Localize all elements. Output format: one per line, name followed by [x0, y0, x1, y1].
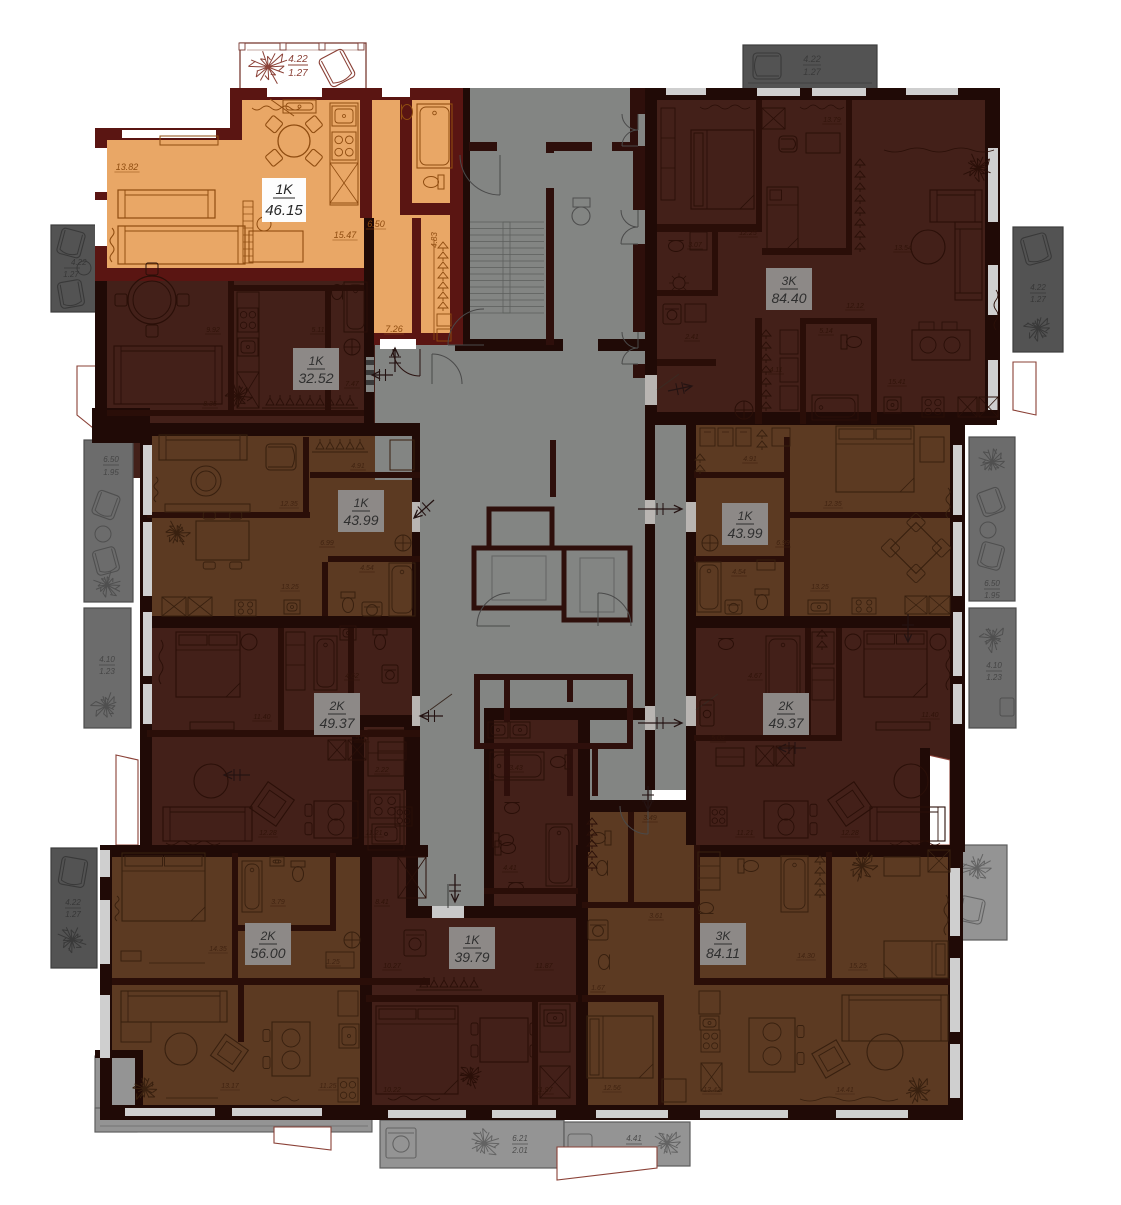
- svg-text:2K: 2K: [778, 699, 795, 713]
- svg-text:3.61: 3.61: [649, 913, 663, 920]
- svg-text:13.42: 13.42: [703, 1087, 721, 1094]
- svg-text:7.26: 7.26: [385, 324, 403, 334]
- svg-text:13.25: 13.25: [281, 584, 299, 591]
- svg-text:3.07: 3.07: [688, 242, 703, 249]
- svg-text:13.17: 13.17: [221, 1083, 240, 1090]
- svg-text:12.56: 12.56: [603, 1085, 621, 1092]
- svg-text:4.22: 4.22: [288, 54, 308, 65]
- svg-text:1K: 1K: [354, 496, 370, 510]
- svg-text:9.92: 9.92: [206, 327, 220, 334]
- svg-text:13.82: 13.82: [116, 162, 139, 172]
- svg-text:49.37: 49.37: [768, 715, 804, 731]
- svg-text:12.35: 12.35: [280, 501, 298, 508]
- svg-text:13.54: 13.54: [894, 245, 912, 252]
- svg-text:12.25: 12.25: [739, 230, 757, 237]
- svg-text:4.22: 4.22: [803, 54, 821, 64]
- svg-text:39.79: 39.79: [454, 949, 489, 965]
- svg-text:10.22: 10.22: [383, 1087, 401, 1094]
- svg-text:8.35: 8.35: [203, 401, 217, 408]
- svg-text:4.22: 4.22: [65, 898, 81, 907]
- svg-text:4.22: 4.22: [71, 258, 87, 267]
- svg-text:1.95: 1.95: [103, 468, 119, 477]
- svg-text:1.27: 1.27: [65, 910, 81, 919]
- svg-text:5.03: 5.03: [355, 735, 369, 742]
- svg-text:11.21: 11.21: [737, 830, 754, 837]
- svg-text:1.27: 1.27: [288, 68, 308, 79]
- svg-text:12.35: 12.35: [824, 501, 842, 508]
- svg-text:4.22: 4.22: [1030, 283, 1046, 292]
- svg-text:3.49: 3.49: [643, 815, 657, 822]
- svg-text:3.43: 3.43: [509, 765, 523, 772]
- svg-text:7.47: 7.47: [345, 381, 360, 388]
- svg-text:4.54: 4.54: [732, 569, 746, 576]
- svg-text:14.30: 14.30: [797, 953, 815, 960]
- svg-text:11.40: 11.40: [254, 714, 271, 721]
- svg-text:4.62: 4.62: [345, 673, 359, 680]
- svg-text:12.28: 12.28: [841, 830, 859, 837]
- svg-text:13.25: 13.25: [811, 584, 829, 591]
- svg-text:2.01: 2.01: [511, 1146, 528, 1155]
- svg-text:6.50: 6.50: [984, 579, 1000, 588]
- svg-text:56.00: 56.00: [250, 945, 285, 961]
- svg-text:43.99: 43.99: [343, 512, 378, 528]
- svg-text:1K: 1K: [738, 509, 754, 523]
- svg-text:43.99: 43.99: [727, 525, 762, 541]
- svg-text:12.28: 12.28: [259, 830, 277, 837]
- svg-text:4.91: 4.91: [743, 456, 757, 463]
- svg-text:3K: 3K: [782, 274, 798, 288]
- svg-text:1.27: 1.27: [63, 270, 79, 279]
- svg-text:2.41: 2.41: [684, 334, 699, 341]
- svg-text:4.41: 4.41: [503, 865, 517, 872]
- svg-text:84.11: 84.11: [706, 945, 740, 961]
- svg-text:5.11: 5.11: [311, 327, 324, 334]
- svg-text:14.41: 14.41: [836, 1087, 854, 1094]
- svg-text:6.50: 6.50: [103, 455, 119, 464]
- svg-text:15.25: 15.25: [849, 963, 867, 970]
- svg-text:11.25: 11.25: [320, 1083, 337, 1090]
- svg-text:1.25: 1.25: [326, 959, 340, 966]
- svg-text:4.67: 4.67: [748, 673, 763, 680]
- svg-text:1K: 1K: [309, 354, 325, 368]
- svg-text:1.27: 1.27: [1030, 295, 1046, 304]
- svg-text:6.99: 6.99: [776, 540, 790, 547]
- svg-text:2K: 2K: [260, 929, 277, 943]
- svg-text:1.95: 1.95: [984, 591, 1000, 600]
- svg-text:4.83: 4.83: [430, 232, 439, 248]
- svg-text:3.79: 3.79: [271, 899, 285, 906]
- svg-text:2.22: 2.22: [374, 767, 389, 774]
- svg-text:1.23: 1.23: [99, 667, 115, 676]
- svg-text:10.27: 10.27: [383, 963, 402, 970]
- svg-text:4.10: 4.10: [99, 655, 115, 664]
- svg-text:4.10: 4.10: [986, 661, 1002, 670]
- svg-text:8.41: 8.41: [375, 899, 389, 906]
- svg-text:5.14: 5.14: [819, 328, 833, 335]
- svg-text:11.40: 11.40: [922, 712, 939, 719]
- svg-text:1.67: 1.67: [591, 985, 606, 992]
- svg-text:1K: 1K: [465, 933, 481, 947]
- svg-text:5.03: 5.03: [711, 735, 725, 742]
- svg-text:4.11: 4.11: [769, 367, 782, 374]
- svg-text:12.12: 12.12: [846, 303, 864, 310]
- svg-text:15.47: 15.47: [334, 230, 358, 240]
- svg-text:3K: 3K: [716, 929, 732, 943]
- svg-text:11.87: 11.87: [536, 963, 554, 970]
- svg-text:1.27: 1.27: [803, 67, 822, 77]
- svg-text:4.54: 4.54: [360, 565, 374, 572]
- svg-text:6.99: 6.99: [320, 540, 334, 547]
- svg-text:11.97: 11.97: [536, 1087, 554, 1094]
- svg-text:6.21: 6.21: [512, 1134, 528, 1143]
- svg-text:6.50: 6.50: [367, 219, 385, 229]
- svg-text:46.15: 46.15: [265, 202, 303, 219]
- svg-text:14.35: 14.35: [209, 946, 227, 953]
- svg-text:32.52: 32.52: [298, 370, 333, 386]
- svg-text:4.91: 4.91: [351, 463, 365, 470]
- svg-text:1K: 1K: [275, 181, 293, 197]
- svg-text:1.23: 1.23: [986, 673, 1002, 682]
- svg-text:84.40: 84.40: [771, 290, 806, 306]
- svg-text:13.79: 13.79: [823, 117, 841, 124]
- svg-text:49.37: 49.37: [319, 715, 355, 731]
- svg-text:2K: 2K: [329, 699, 346, 713]
- svg-text:15.41: 15.41: [888, 379, 906, 386]
- svg-text:4.41: 4.41: [626, 1134, 642, 1143]
